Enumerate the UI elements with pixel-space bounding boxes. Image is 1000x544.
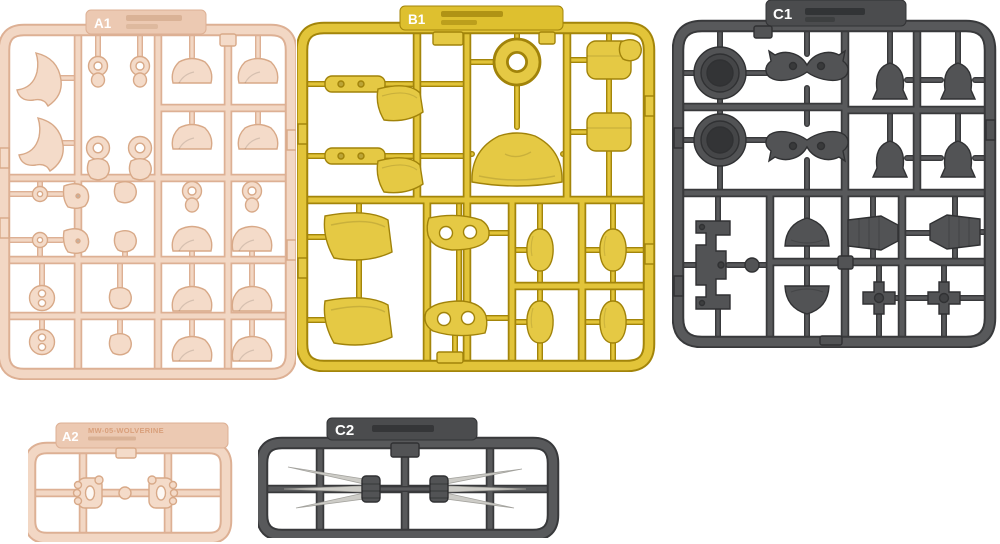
chest-dome-part [472, 133, 562, 186]
small-part [114, 231, 136, 252]
sprue-code-label: A1 [94, 16, 112, 31]
helmet-box-part [587, 113, 631, 151]
sprue-code-label: C2 [335, 422, 354, 439]
sprue-code-label: A2 [62, 429, 79, 444]
claw-knuckle-hub-part [430, 476, 448, 502]
product-image: A1 [0, 0, 1000, 544]
egg-armor-part [600, 229, 626, 271]
small-part [619, 40, 641, 61]
armor-dome-part [172, 337, 212, 362]
bell-armor-part [873, 63, 907, 99]
gate-tab [986, 120, 995, 140]
curved-plate-part [324, 298, 392, 345]
tab-fine-print [372, 425, 434, 432]
joint-ring-part [243, 182, 262, 213]
sole-plate-part [425, 301, 487, 336]
small-part [129, 159, 151, 180]
claw-knuckle-hub-part [362, 476, 380, 502]
sprue-c2-tab: C2 [327, 418, 477, 440]
cone-part [848, 216, 898, 250]
claw-blade [296, 493, 364, 508]
sole-plate-part [427, 215, 489, 250]
tab-fine-print [126, 24, 158, 29]
sprue-b1-tab: B1 [400, 6, 563, 30]
bell-armor-part [873, 141, 907, 177]
gate-block [433, 32, 463, 45]
gate-tab [674, 276, 683, 296]
claw-blade [288, 467, 364, 484]
hinge-bar-part [325, 148, 385, 164]
helmet-crescent-part [19, 118, 63, 171]
hand-part [74, 476, 104, 508]
gate-block [820, 336, 842, 345]
sprue-a1: A1 [0, 8, 296, 380]
round-lens-part [694, 47, 746, 99]
small-part [114, 182, 136, 203]
hinge-bar-part [325, 76, 385, 92]
sprue-c1-tab: C1 [766, 0, 906, 26]
dome-bowl-part [785, 286, 829, 314]
armor-dome-part [232, 337, 272, 362]
gate-block [116, 448, 136, 458]
armor-dome-part [232, 227, 272, 252]
double-hole-ring-part [30, 286, 55, 311]
armor-dome-part [172, 59, 212, 84]
gate-tab [287, 130, 296, 150]
egg-armor-part [527, 301, 553, 343]
armor-dome-part [172, 227, 212, 252]
joint-ring-part [89, 57, 108, 88]
round-lens-part [694, 114, 746, 166]
gate-tab [287, 240, 296, 260]
small-part [109, 334, 131, 355]
gate-tab [0, 148, 9, 168]
ring-part [87, 137, 110, 160]
double-hole-ring-part [30, 330, 55, 355]
gate-tab [0, 218, 9, 238]
gate-block [391, 443, 419, 457]
sprue-c1: C1 [672, 0, 997, 348]
sprue-c2: C2 [258, 404, 560, 538]
tab-fine-print [88, 437, 136, 441]
tab-fine-print [805, 8, 865, 15]
curved-plate-part [324, 213, 392, 260]
ball-stud-part [745, 258, 759, 272]
armor-dome-part [238, 59, 278, 84]
shoulder-armor-part [377, 158, 423, 193]
sprue-code-label: C1 [773, 6, 792, 23]
bell-armor-part [941, 141, 975, 177]
egg-armor-part [527, 229, 553, 271]
armor-dome-part [172, 287, 212, 312]
small-helmet-part [64, 229, 89, 254]
bracket-clamp-part [696, 221, 730, 309]
egg-armor-part [600, 301, 626, 343]
gate-block [754, 26, 772, 38]
small-part [87, 159, 109, 180]
sprue-code-label: B1 [408, 12, 426, 27]
cross-joint-part [863, 282, 895, 314]
armor-dome-part [172, 125, 212, 150]
sprue-a1-tab: A1 [86, 10, 206, 34]
knob-part [119, 487, 131, 499]
ring-part [129, 137, 152, 160]
gate-tab [298, 124, 307, 144]
gate-tab [674, 128, 683, 148]
tab-fine-print [441, 20, 477, 25]
gate-block [838, 256, 853, 269]
gate-block [437, 352, 463, 363]
sprue-a2-parts [74, 448, 178, 508]
helmet-crescent-part [17, 53, 61, 106]
sprue-a2-tab: A2 MW-05-WOLVERINE [56, 423, 228, 448]
tab-fine-print [126, 15, 182, 21]
cross-joint-part [928, 282, 960, 314]
shoulder-armor-part [377, 86, 423, 121]
armor-dome-part [232, 287, 272, 312]
gate-tab [645, 244, 654, 264]
joint-ring-part [131, 57, 150, 88]
joint-ring-part [183, 182, 202, 213]
cowl-mask-part [766, 132, 848, 161]
round-cap-part [494, 39, 540, 85]
claw-blade [446, 469, 522, 484]
claw-blade [446, 493, 514, 508]
cone-part [930, 215, 980, 249]
armor-dome-part [238, 125, 278, 150]
tab-note-text: MW-05-WOLVERINE [88, 426, 164, 435]
bell-armor-part [941, 63, 975, 99]
knob-part [33, 233, 48, 248]
sprue-b1: B1 [297, 4, 657, 372]
hand-part [148, 476, 178, 508]
sprue-a2: A2 MW-05-WOLVERINE [28, 416, 233, 542]
gate-tab [645, 96, 654, 116]
tab-fine-print [805, 17, 835, 22]
knob-part [33, 187, 48, 202]
dome-bowl-part [785, 218, 829, 246]
tab-fine-print [441, 11, 503, 17]
gate-block [539, 32, 555, 44]
gate-tab [298, 258, 307, 278]
small-helmet-part [64, 184, 89, 209]
small-part [109, 288, 131, 309]
gate-block [220, 34, 236, 46]
